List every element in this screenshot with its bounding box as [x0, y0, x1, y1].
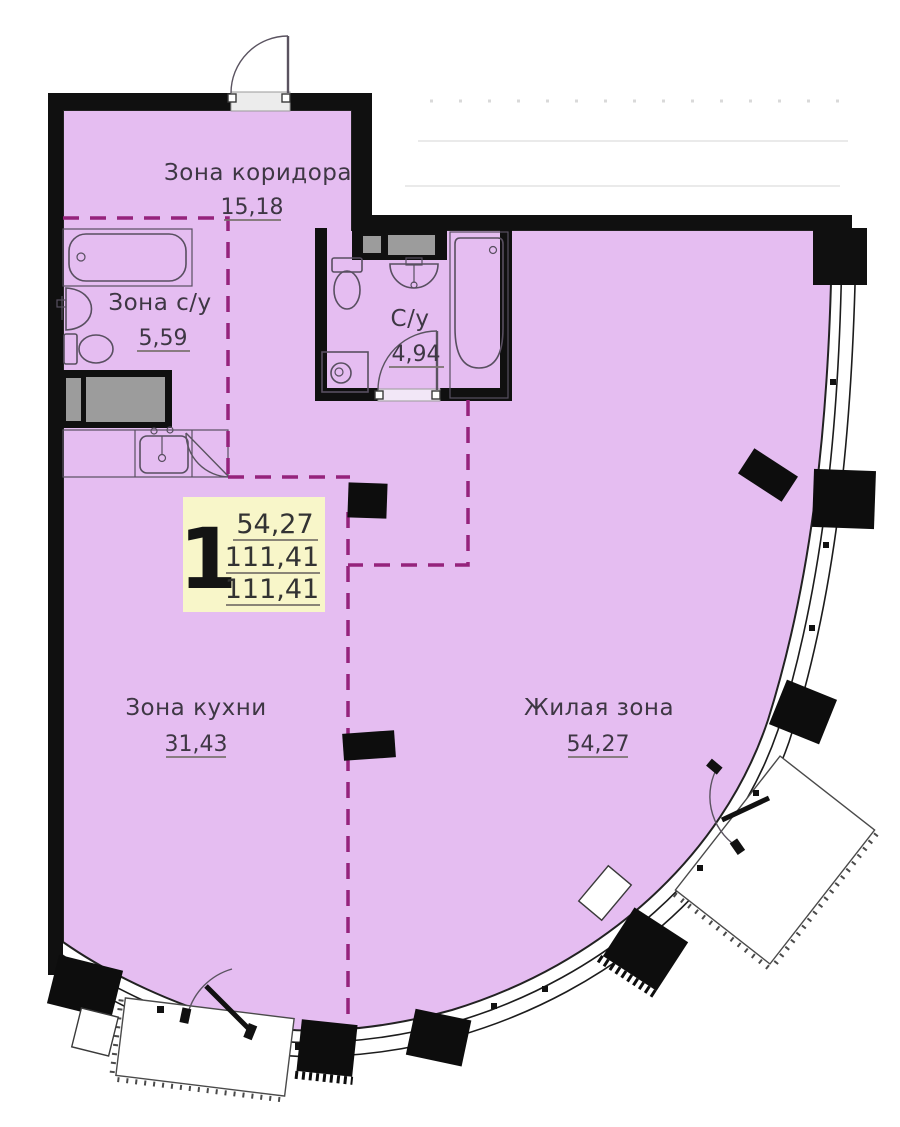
- facade-pillar: [812, 469, 876, 529]
- floor-plan-page: Зона коридора 15,18 Зона с/у 5,59 С/у 4,…: [0, 0, 900, 1127]
- facade-guides: [405, 101, 860, 186]
- badge-total-area: 111,41: [225, 574, 319, 605]
- corridor-zone-area: 15,18: [221, 195, 284, 220]
- sanitary-zone-label: Зона с/у: [108, 290, 211, 316]
- kitchen-zone-area: 31,43: [165, 732, 228, 757]
- living-zone-area: 54,27: [567, 732, 630, 757]
- entry-door-arc: [231, 36, 288, 93]
- column: [347, 482, 387, 518]
- facade-pillar: [769, 680, 837, 745]
- entry-door: [228, 36, 290, 111]
- balcony-divider: [72, 1008, 119, 1056]
- entry-threshold: [231, 92, 290, 111]
- vent-duct-small: [362, 235, 382, 254]
- apartment-info-badge: 1 54,27 111,41 111,41: [179, 497, 325, 612]
- living-zone-label: Жилая зона: [524, 695, 674, 721]
- facade-pillar: [406, 1009, 472, 1067]
- corridor-zone-label: Зона коридора: [164, 160, 352, 186]
- entry-hinge-icon: [228, 94, 236, 102]
- vent-duct-left: [66, 378, 81, 421]
- bathroom-hinge-icon: [375, 391, 383, 399]
- bathroom-label: С/у: [391, 306, 430, 332]
- bathroom-area: 4,94: [392, 342, 441, 367]
- bathroom-threshold: [378, 389, 440, 401]
- badge-living-area: 54,27: [236, 509, 313, 540]
- facade-pillar: [295, 1019, 359, 1081]
- column: [342, 730, 396, 761]
- vent-duct-right: [86, 377, 165, 422]
- vent-duct-large: [387, 234, 436, 256]
- floor-plan: Зона коридора 15,18 Зона с/у 5,59 С/у 4,…: [0, 0, 900, 1127]
- badge-area: 111,41: [225, 542, 319, 573]
- sanitary-zone-area: 5,59: [139, 326, 188, 351]
- kitchen-zone-label: Зона кухни: [125, 695, 266, 721]
